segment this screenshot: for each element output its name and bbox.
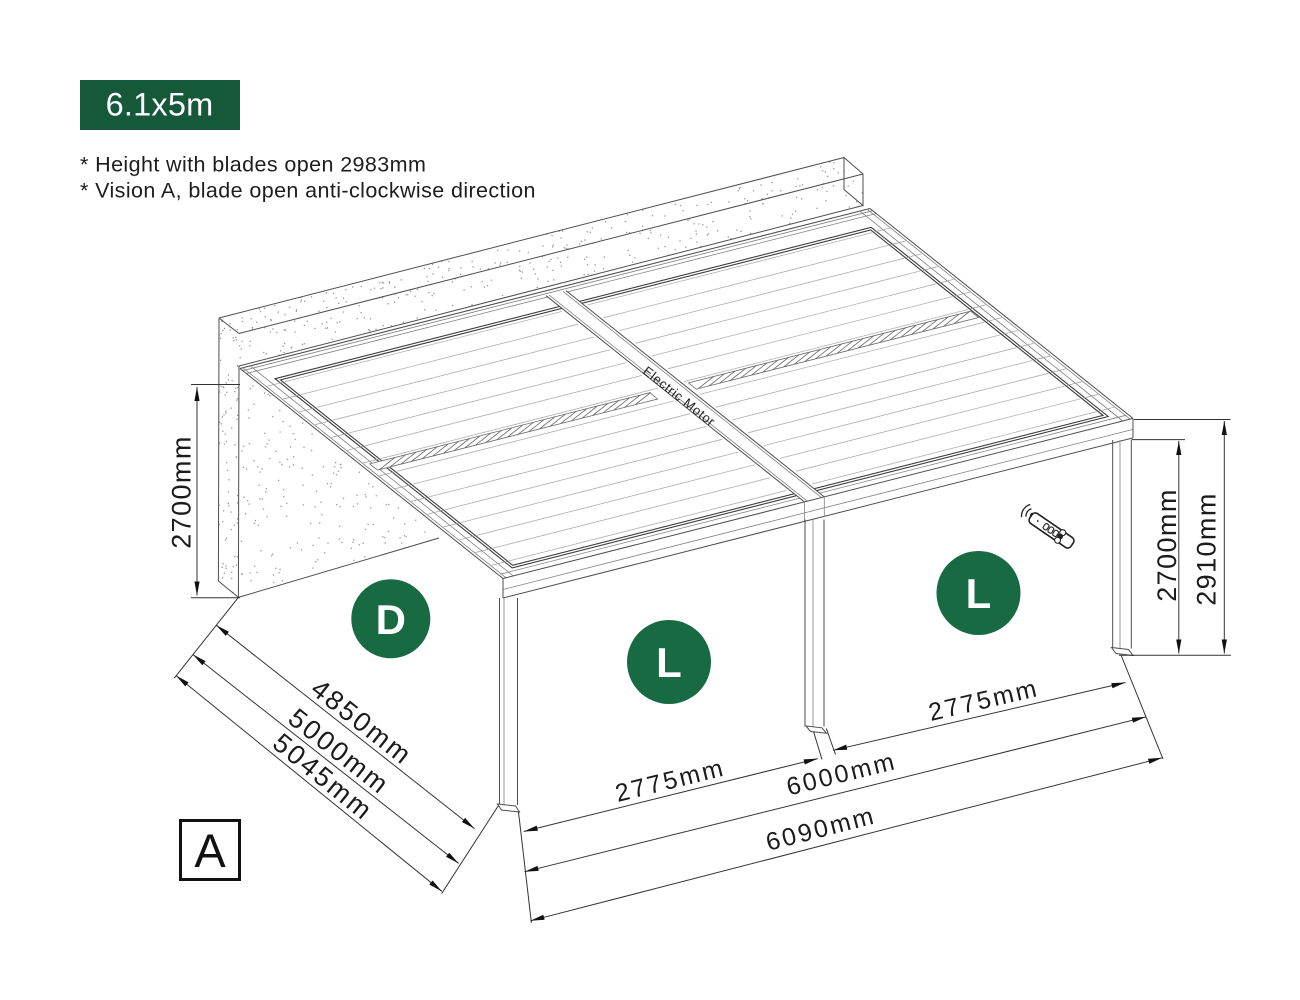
svg-text:6.1x5m: 6.1x5m	[106, 87, 214, 123]
svg-text:6090mm: 6090mm	[763, 801, 879, 856]
svg-text:2775mm: 2775mm	[926, 674, 1042, 727]
svg-text:D: D	[376, 596, 406, 643]
svg-text:A: A	[194, 824, 226, 877]
svg-text:2775mm: 2775mm	[612, 754, 728, 808]
svg-text:* Height with blades open 2983: * Height with blades open 2983mm	[80, 153, 426, 177]
svg-text:L: L	[966, 570, 992, 617]
svg-text:L: L	[656, 639, 682, 686]
svg-text:2700mm: 2700mm	[1152, 488, 1182, 601]
svg-text:2910mm: 2910mm	[1192, 492, 1222, 605]
svg-text:* Vision A, blade open anti-cl: * Vision A, blade open anti-clockwise di…	[80, 178, 536, 202]
svg-text:2700mm: 2700mm	[167, 435, 197, 548]
